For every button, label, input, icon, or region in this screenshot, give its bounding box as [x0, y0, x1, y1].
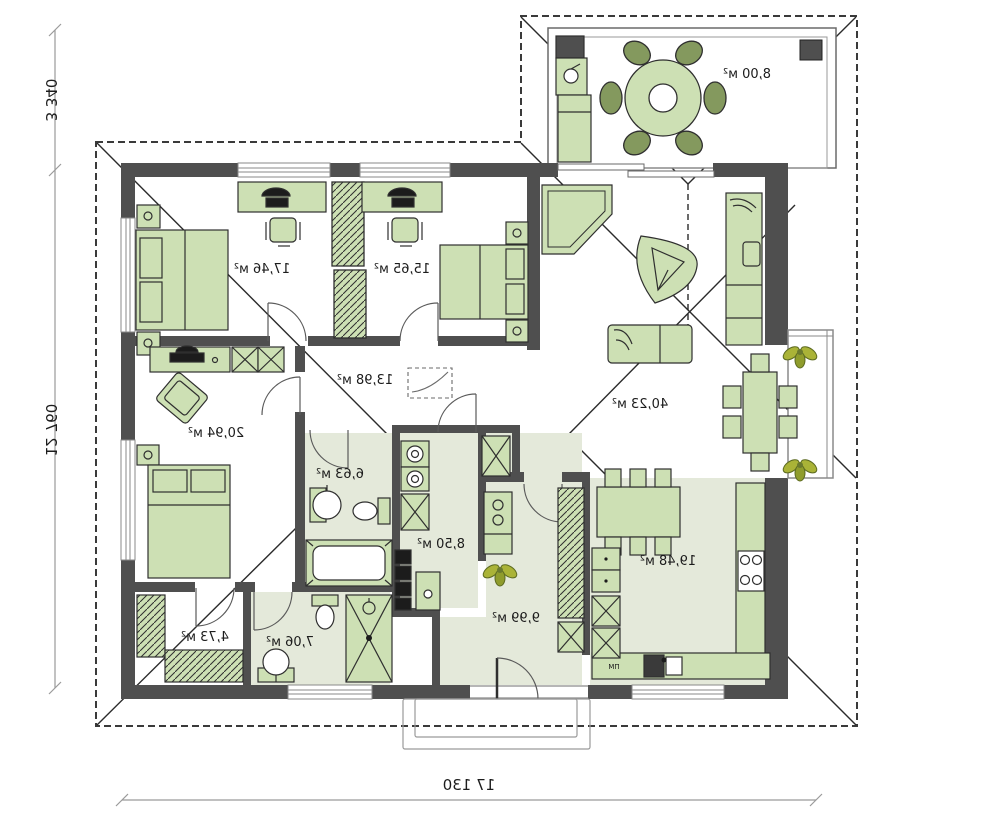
kitchen-counter-right-icon: [736, 483, 765, 655]
armchair2-icon: [608, 325, 692, 363]
washer-icon: [401, 441, 429, 467]
master-bedroom: [137, 346, 284, 578]
door-bedroom1: [268, 303, 306, 341]
entrance-porch: [403, 699, 590, 749]
chair-icon: [266, 218, 300, 246]
shower-icon: [346, 595, 392, 682]
chair-icon: [388, 218, 422, 246]
window-bathroom2-bottom: [288, 685, 372, 699]
bathtub-icon: [306, 540, 392, 586]
nightstand-icon: [506, 320, 528, 342]
closet-hatch-icon: [137, 595, 165, 657]
window-master-left: [121, 440, 135, 560]
wardrobe-area-label: 4,73 м²: [181, 630, 229, 645]
door-bedroom2: [400, 303, 438, 341]
dishwasher-label: ПМ: [608, 663, 619, 671]
floor-plan-svg: 3 340 12 760 17 130: [0, 0, 1000, 822]
bedroom1-area-label: 17,46 м²: [234, 262, 290, 277]
utility-area-label: 8,50 м²: [417, 537, 465, 552]
stove-icon: [738, 551, 764, 591]
cabinet-x-icon: [401, 494, 429, 530]
door-master: [262, 377, 300, 415]
bed-icon: [440, 245, 528, 319]
kitchen-table-icon: [597, 469, 680, 555]
dryer-icon: [401, 467, 429, 491]
desk-icon: [362, 182, 442, 212]
tv-dresser-icon: [150, 346, 230, 372]
terrace: 8,00 м²: [548, 28, 836, 168]
floor-plan-canvas: 3 340 12 760 17 130: [0, 0, 1000, 822]
boiler-icon: [395, 550, 411, 610]
terrace-area-label: 8,00 м²: [723, 67, 771, 82]
living-area-label: 40,23 м²: [612, 397, 668, 412]
bedroom2-area-label: 15,65 м²: [374, 262, 430, 277]
bed-icon: [148, 465, 230, 578]
bathroom2-area-label: 7,06 м²: [266, 635, 314, 650]
dim-terrace-depth: 3 340: [42, 79, 60, 122]
bed-icon: [136, 230, 228, 330]
coat-closet-icon: [558, 488, 584, 652]
dimension-bottom: [116, 794, 822, 806]
nightstand-icon: [137, 205, 160, 228]
nightstand-icon: [137, 445, 159, 465]
hall-area-label: 9,99 м²: [492, 611, 540, 626]
nightstand-icon: [506, 222, 528, 244]
door-wardrobe: [196, 588, 234, 626]
sink-icon: [644, 655, 682, 677]
dim-total-width: 17 130: [443, 776, 496, 794]
armchair-icon: [155, 371, 209, 424]
master-area-label: 20,94 м²: [188, 426, 244, 441]
dim-house-depth: 12 760: [42, 404, 60, 457]
corner-cabinet-icon: [542, 185, 612, 254]
kitchen-cabinets-left-icon: [592, 548, 620, 658]
window-bedroom1-left: [121, 218, 135, 332]
dining-table-icon: [723, 354, 797, 471]
window-kitchen-bottom: [632, 685, 724, 699]
attic-hatch-icon: [408, 368, 452, 398]
wardrobe-strip-icon: [332, 182, 366, 338]
window-bedroom1-top: [238, 163, 330, 177]
living-room: [542, 185, 797, 471]
closet-hatch-icon: [165, 650, 243, 682]
window-bedroom2-top: [360, 163, 450, 177]
desk-icon: [238, 182, 326, 212]
bedroom1: [136, 182, 326, 355]
hall-wardrobe-icon: [484, 492, 512, 554]
sofa-icon: [726, 193, 762, 345]
dimension-left: [49, 24, 61, 694]
corridor-area-label: 13,98 м²: [337, 373, 393, 388]
tech-unit-icon: [416, 572, 440, 610]
vent-shaft-icon: [482, 436, 510, 476]
wardrobe-x-icon: [232, 347, 284, 372]
kitchen-area-label: 19,48 м²: [640, 554, 696, 569]
bathroom1-area-label: 6,63 м²: [316, 467, 364, 482]
terrace-column: [800, 40, 822, 60]
